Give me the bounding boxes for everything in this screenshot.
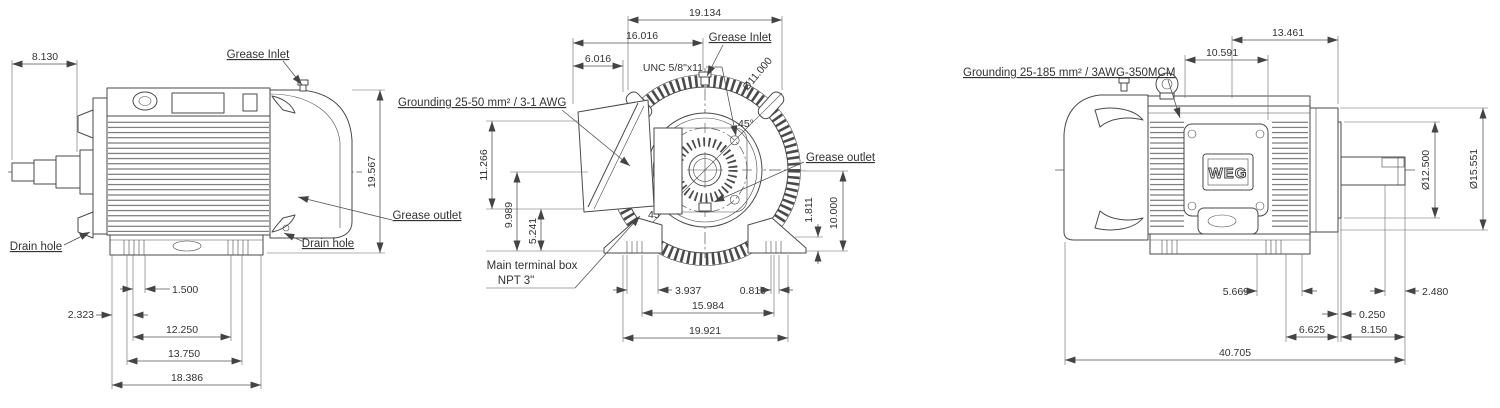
motor-dimension-drawing: 8.130 19.567 1.500 2.323 12.250 13.750	[0, 0, 1500, 408]
grounding-label: Grounding 25-50 mm² / 3-1 AWG	[398, 97, 566, 109]
terminal-box-label-line1: Main terminal box	[487, 260, 578, 272]
drain-hole-right-label: Drain hole	[302, 238, 354, 250]
dim-mount-holes: 12.250	[166, 324, 198, 336]
grease-outlet-label: Grease outlet	[806, 152, 876, 164]
dim-box-bottom-height: 5.241	[527, 218, 539, 244]
dim-box-depth: 6.016	[585, 53, 611, 65]
terminal-box	[578, 100, 682, 214]
cooling-fins	[108, 118, 269, 232]
dim-overall-width: 19.134	[689, 7, 721, 19]
top-lug	[78, 110, 93, 138]
grounding-label: Grounding 25-185 mm² / 3AWG-350MCM	[963, 67, 1175, 79]
dim-foot-slot: 1.500	[172, 284, 198, 296]
dim-foot-thickness: 1.811	[803, 197, 815, 223]
dim-shaft-extension: 8.130	[32, 51, 58, 63]
dim-foot-span: 13.750	[168, 348, 200, 360]
shaft	[1341, 157, 1405, 185]
dim-shaft-extension: 8.150	[1361, 324, 1387, 336]
nameplate	[172, 93, 224, 113]
cooling-fins-left	[1150, 118, 1184, 230]
side-view-left: 8.130 19.567 1.500 2.323 12.250 13.750	[8, 49, 462, 389]
flange	[1310, 108, 1341, 232]
dim-box-to-inlet: 16.016	[626, 30, 658, 42]
dim-base-width: 19.921	[689, 325, 721, 337]
weg-logo-text: WEG	[1209, 165, 1248, 182]
dim-foot-to-flange: 6.625	[1299, 324, 1325, 336]
fan-cover	[1064, 78, 1148, 240]
motor-body	[107, 88, 270, 235]
dim-flange-diameter: Ø15.551	[1468, 149, 1480, 189]
terminal-box-bottom	[1198, 208, 1258, 234]
dim-foot-slot: 5.669	[1223, 286, 1249, 298]
dim-bolt-circle: Ø11.000	[740, 55, 775, 93]
feet	[1150, 234, 1310, 254]
dim-key-length: 2.480	[1422, 286, 1448, 298]
fan-cover	[270, 80, 352, 238]
front-endbell	[93, 98, 107, 234]
side-view-right: WEG	[963, 27, 1488, 365]
motor-body: WEG	[1148, 73, 1310, 234]
weg-logo: WEG	[1203, 154, 1253, 190]
shaft	[12, 150, 93, 194]
dim-spigot-depth: 0.250	[1359, 309, 1385, 321]
feet	[110, 235, 263, 255]
dim-spigot-diameter: Ø12.500	[1420, 150, 1432, 190]
grease-inlet-label: Grease Inlet	[227, 49, 290, 61]
cooling-fins-right	[1272, 118, 1308, 230]
technical-drawing: 8.130 19.567 1.500 2.323 12.250 13.750	[0, 0, 1500, 408]
dim-base-length: 18.386	[171, 372, 203, 384]
dim-slot-width: 0.810	[740, 285, 766, 297]
grease-inlet-label: Grease Inlet	[709, 32, 772, 44]
dim-eye-to-plate: 10.591	[1206, 47, 1238, 59]
dim-edge-offset: 2.323	[68, 309, 94, 321]
dim-foot-slot: 3.937	[675, 285, 701, 297]
dim-overall-height: 19.567	[366, 156, 378, 188]
dim-overall-length: 40.705	[1219, 347, 1251, 359]
dim-box-height: 11.266	[478, 149, 490, 180]
grease-outlet-label: Grease outlet	[392, 210, 462, 222]
dim-center-height: 9.989	[503, 202, 515, 228]
drain-hole-left-label: Drain hole	[10, 241, 62, 253]
dim-mount-holes: 15.984	[692, 300, 724, 312]
grease-outlet-fitting	[699, 203, 711, 211]
angle-45-top: 45°	[738, 118, 754, 130]
dim-plate-to-flange: 13.461	[1272, 27, 1304, 39]
front-view: 45° 45°	[398, 7, 876, 342]
tap-label: UNC 5/8"x11	[643, 62, 703, 74]
terminal-box-label-line2: NPT 3"	[498, 275, 534, 287]
lifting-eye	[133, 92, 157, 110]
dim-outlet-height: 10.000	[828, 197, 840, 229]
